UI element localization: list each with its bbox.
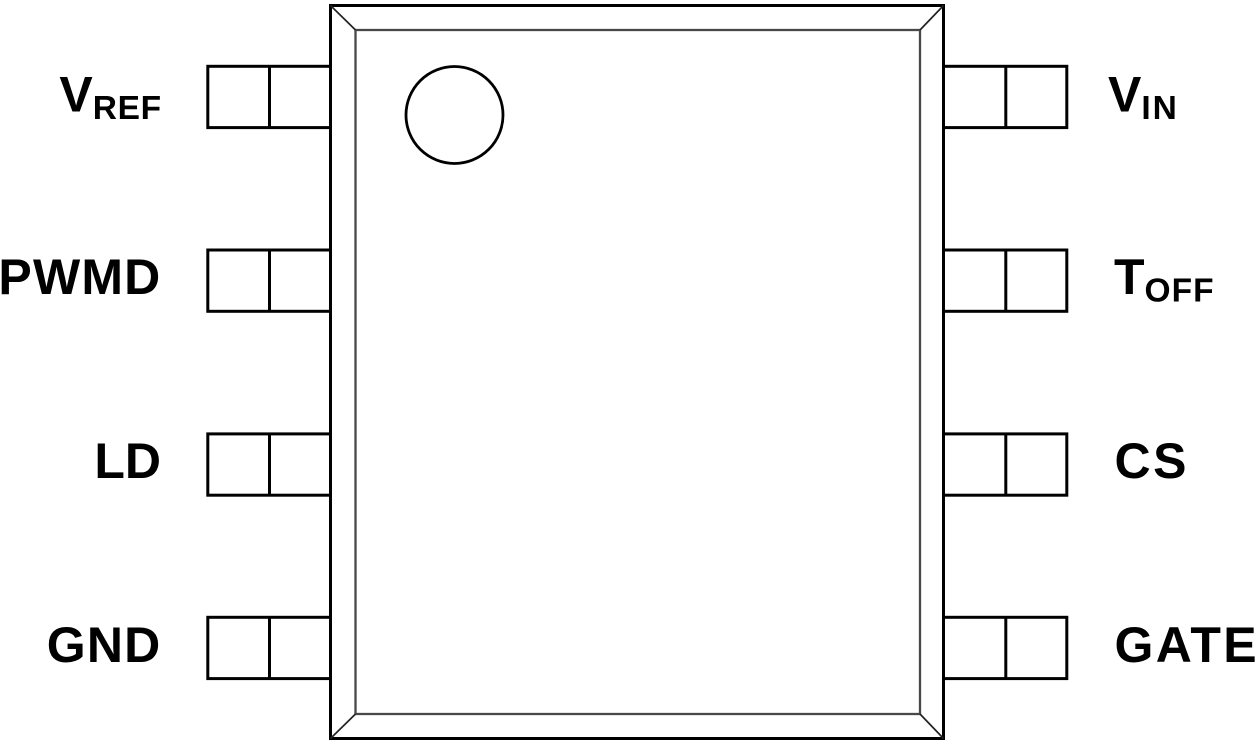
svg-text:GATE: GATE [1115, 617, 1256, 673]
svg-text:LD: LD [94, 433, 161, 489]
svg-text:PWMD: PWMD [0, 249, 162, 305]
svg-text:CS: CS [1115, 433, 1189, 489]
svg-text:GND: GND [47, 617, 162, 673]
